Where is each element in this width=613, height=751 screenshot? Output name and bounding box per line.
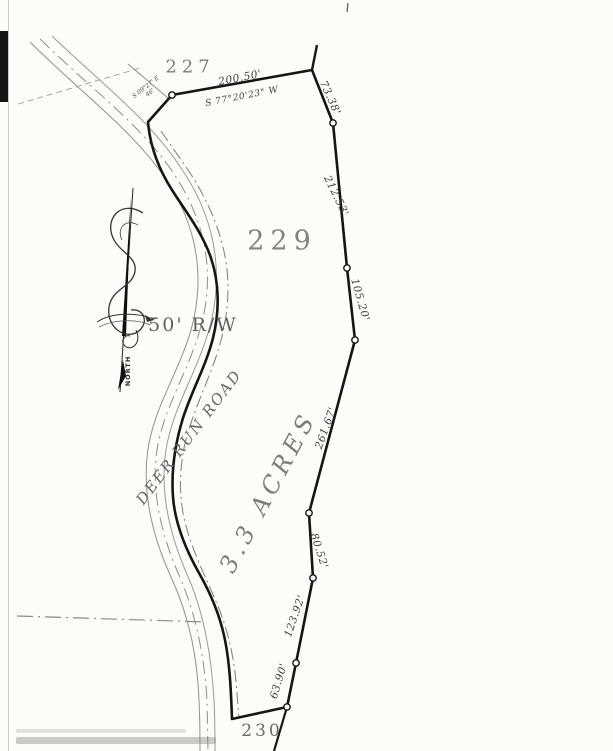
parcel-boundary-east [172,70,355,707]
monument-circle [352,337,358,343]
plat-linework [0,0,613,751]
lot-number-227: 227 [165,57,214,78]
illegible-footer-text [16,729,186,733]
monument-circle [330,120,336,126]
monument-circle [169,92,175,98]
boundary-stub-north [312,45,317,70]
monument-circle [284,704,290,710]
road-centerline [40,39,208,751]
monument-circle [306,510,312,516]
lot-number-229: 229 [247,226,317,257]
scan-edge-black-bar [0,31,8,102]
sheet-tick-mark [347,3,348,12]
north-label: NORTH [124,356,132,387]
road-west-edge-line [30,42,200,751]
survey-plat-map: 227 229 230 3.3 ACRES DEER RUN ROAD 50' … [0,0,613,751]
illegible-footer-text [16,737,216,744]
monument-circle [344,265,350,271]
right-of-way-label: 50' R/W [148,314,238,336]
lot-number-230: 230 [241,721,282,741]
monument-circle [293,660,299,666]
monument-circle [310,575,316,581]
adjoining-lot-line-bottom [17,616,206,622]
compass-needle-fill [122,195,131,336]
adjoining-lot-line-top [18,68,140,104]
